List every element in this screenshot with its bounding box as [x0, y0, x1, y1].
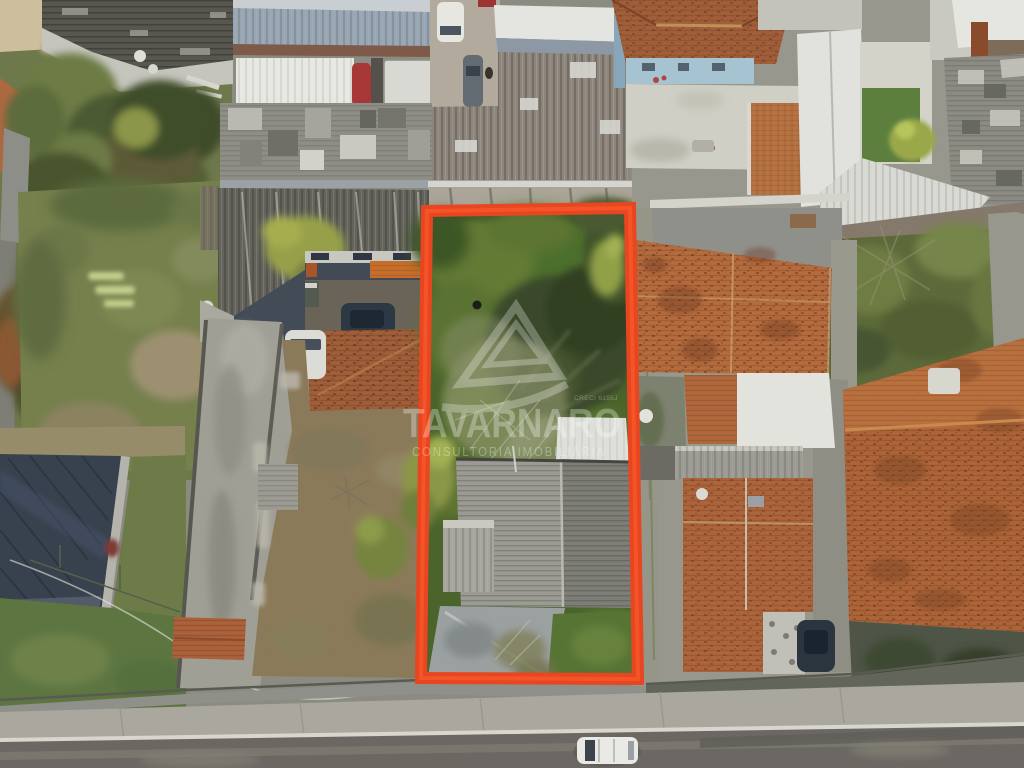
svg-text:TAVARNARO: TAVARNARO — [403, 400, 621, 446]
svg-text:CONSULTORIA IMOBILIÁRIA: CONSULTORIA IMOBILIÁRIA — [412, 444, 606, 459]
